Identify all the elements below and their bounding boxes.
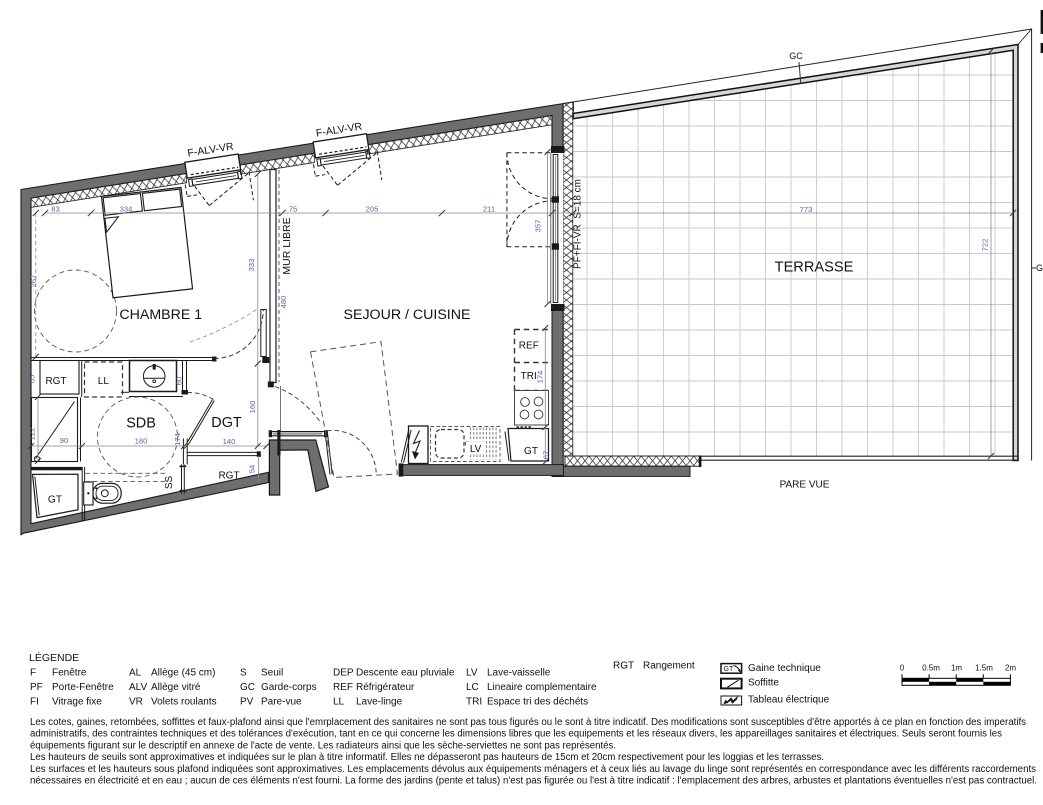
svg-text:équipements figurant sur le de: équipements figurant sur le descriptif e… bbox=[30, 740, 616, 751]
svg-text:GT: GT bbox=[724, 666, 734, 673]
svg-text:REF: REF bbox=[333, 682, 353, 693]
svg-text:GT: GT bbox=[524, 446, 538, 457]
svg-text:GC: GC bbox=[789, 51, 803, 61]
svg-text:Tableau électrique: Tableau électrique bbox=[748, 695, 830, 706]
svg-text:Lave-vaisselle: Lave-vaisselle bbox=[487, 668, 551, 679]
svg-text:ALV: ALV bbox=[129, 682, 147, 693]
svg-text:Les surfaces et les hauteurs s: Les surfaces et les hauteurs sous plafon… bbox=[30, 764, 1036, 775]
svg-text:Allège vitré: Allège vitré bbox=[151, 682, 201, 693]
svg-text:211: 211 bbox=[483, 205, 495, 214]
svg-text:PARE VUE: PARE VUE bbox=[780, 480, 830, 491]
svg-text:S: S bbox=[240, 668, 247, 679]
svg-text:AL: AL bbox=[129, 668, 142, 679]
svg-text:Les cotes, gaines, retombées,: Les cotes, gaines, retombées, soffittes … bbox=[30, 717, 1026, 728]
svg-text:2m: 2m bbox=[1005, 664, 1016, 673]
svg-text:LL: LL bbox=[333, 697, 345, 708]
svg-text:LL: LL bbox=[98, 376, 110, 387]
svg-text:SS: SS bbox=[164, 476, 175, 490]
svg-text:FI: FI bbox=[30, 697, 39, 708]
svg-text:RGT: RGT bbox=[218, 471, 239, 482]
svg-text:1m: 1m bbox=[951, 664, 962, 673]
svg-text:60: 60 bbox=[175, 377, 184, 385]
svg-text:267: 267 bbox=[29, 275, 38, 288]
svg-text:TRI: TRI bbox=[466, 697, 482, 708]
svg-text:RGT: RGT bbox=[45, 376, 66, 387]
svg-text:LC: LC bbox=[466, 682, 479, 693]
svg-text:SDB: SDB bbox=[126, 415, 156, 431]
svg-text:0: 0 bbox=[900, 664, 905, 673]
svg-text:480: 480 bbox=[279, 296, 288, 309]
svg-text:F: F bbox=[30, 668, 36, 679]
svg-text:CHAMBRE 1: CHAMBRE 1 bbox=[119, 307, 202, 323]
svg-text:Lave-linge: Lave-linge bbox=[356, 697, 403, 708]
svg-text:0.5m: 0.5m bbox=[922, 664, 940, 673]
svg-text:nécessaires en électricité et: nécessaires en électricité et en eau ; a… bbox=[30, 776, 1037, 787]
svg-text:Lineaire complementaire: Lineaire complementaire bbox=[487, 682, 597, 693]
svg-text:Vitrage fixe: Vitrage fixe bbox=[52, 697, 102, 708]
svg-text:160: 160 bbox=[248, 401, 257, 414]
svg-text:TRI: TRI bbox=[521, 371, 537, 382]
svg-text:LÉGENDE: LÉGENDE bbox=[29, 651, 79, 664]
svg-text:VR: VR bbox=[129, 697, 143, 708]
svg-text:TERRASSE: TERRASSE bbox=[775, 260, 854, 276]
svg-text:PF+FI-VR S=18 cm: PF+FI-VR S=18 cm bbox=[573, 179, 584, 269]
svg-text:Fenêtre: Fenêtre bbox=[52, 668, 87, 679]
svg-text:205: 205 bbox=[366, 205, 379, 214]
svg-text:REF: REF bbox=[519, 341, 539, 352]
svg-text:Gaine technique: Gaine technique bbox=[748, 663, 821, 674]
svg-text:Descente eau pluviale: Descente eau pluviale bbox=[356, 668, 455, 679]
svg-text:54: 54 bbox=[248, 465, 257, 473]
svg-text:773: 773 bbox=[800, 205, 813, 214]
svg-text:LV: LV bbox=[466, 668, 478, 679]
svg-text:GT: GT bbox=[48, 495, 62, 506]
svg-text:DGT: DGT bbox=[211, 415, 242, 431]
svg-text:GC: GC bbox=[240, 682, 255, 693]
svg-text:Porte-Fenêtre: Porte-Fenêtre bbox=[52, 682, 114, 693]
svg-text:PF: PF bbox=[30, 682, 43, 693]
svg-text:DEP: DEP bbox=[333, 668, 354, 679]
svg-text:333: 333 bbox=[247, 259, 256, 272]
svg-text:Pare-vue: Pare-vue bbox=[261, 697, 302, 708]
svg-text:PV: PV bbox=[240, 697, 254, 708]
svg-text:334: 334 bbox=[120, 205, 133, 214]
svg-text:722: 722 bbox=[981, 239, 990, 252]
svg-text:MUR LIBRE: MUR LIBRE bbox=[281, 217, 293, 274]
svg-text:administratifs, des contrainte: administratifs, des contraintes techniqu… bbox=[30, 729, 1002, 740]
svg-text:Espace tri des déchéts: Espace tri des déchéts bbox=[487, 697, 588, 708]
svg-text:Allège (45 cm): Allège (45 cm) bbox=[151, 668, 215, 679]
svg-text:75: 75 bbox=[289, 205, 297, 214]
svg-text:Volets roulants: Volets roulants bbox=[151, 697, 217, 708]
svg-text:Seuil: Seuil bbox=[261, 668, 283, 679]
svg-text:Rangement: Rangement bbox=[643, 661, 695, 672]
svg-text:1.5m: 1.5m bbox=[975, 664, 993, 673]
svg-text:LV: LV bbox=[470, 444, 482, 455]
svg-text:Soffitte: Soffitte bbox=[748, 678, 779, 689]
svg-text:Garde-corps: Garde-corps bbox=[261, 682, 317, 693]
svg-text:65: 65 bbox=[28, 375, 37, 383]
svg-text:90: 90 bbox=[60, 436, 68, 445]
svg-text:Les hauteurs de seuils sont ap: Les hauteurs de seuils sont approximativ… bbox=[30, 752, 824, 763]
svg-text:83: 83 bbox=[51, 205, 59, 214]
svg-text:67: 67 bbox=[542, 451, 551, 459]
svg-text:122: 122 bbox=[28, 428, 37, 441]
svg-text:Réfrigérateur: Réfrigérateur bbox=[356, 682, 415, 693]
svg-text:180: 180 bbox=[135, 437, 148, 446]
svg-text:140: 140 bbox=[223, 437, 236, 446]
svg-text:357: 357 bbox=[534, 220, 543, 233]
svg-text:G: G bbox=[1036, 263, 1043, 273]
svg-text:174: 174 bbox=[536, 371, 545, 384]
svg-text:SEJOUR / CUISINE: SEJOUR / CUISINE bbox=[344, 307, 471, 323]
svg-text:174: 174 bbox=[173, 433, 182, 446]
svg-text:RGT: RGT bbox=[613, 661, 634, 672]
